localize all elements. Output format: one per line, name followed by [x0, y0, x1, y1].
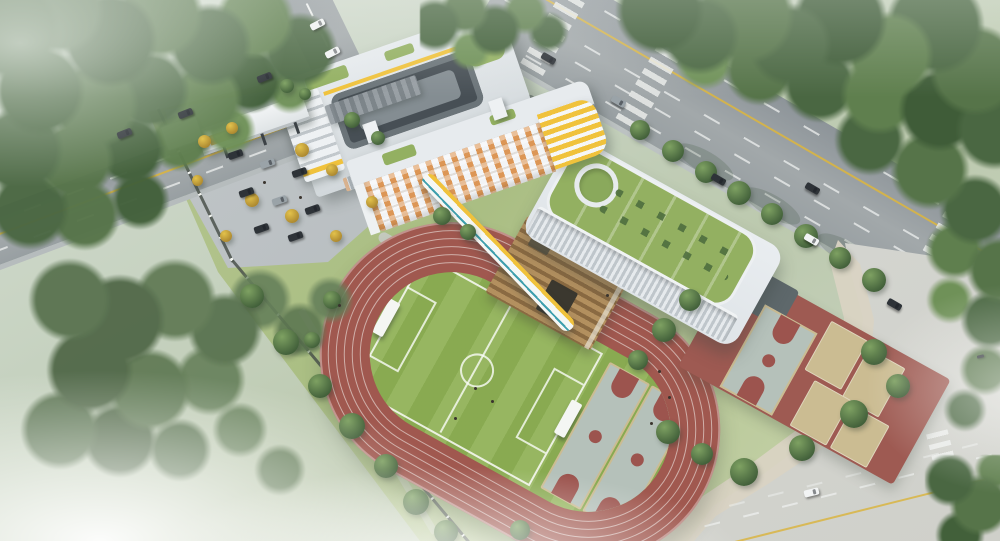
ginkgo-tree — [220, 230, 232, 242]
center-spot — [628, 450, 646, 468]
runner-dot — [606, 294, 609, 297]
center-spot — [586, 427, 604, 445]
forest-north-median — [420, 0, 570, 75]
tree — [656, 420, 680, 444]
ginkgo-tree — [330, 230, 342, 242]
person-dot — [454, 417, 457, 420]
tree — [840, 400, 868, 428]
forest-southwest — [0, 255, 460, 541]
tree — [861, 339, 887, 365]
tree — [730, 458, 758, 486]
tree — [630, 120, 650, 140]
tree — [371, 131, 385, 145]
roof-planting — [381, 144, 417, 166]
tree — [727, 181, 751, 205]
forest-northwest — [0, 0, 370, 260]
runner-dot — [658, 370, 661, 373]
person-dot — [491, 400, 494, 403]
runner-dot — [668, 396, 671, 399]
person-dot — [263, 181, 266, 184]
tree — [403, 489, 429, 515]
runner-dot — [650, 422, 653, 425]
tree — [344, 112, 360, 128]
ginkgo-tree — [326, 164, 338, 176]
ginkgo-tree — [366, 196, 378, 208]
tree — [829, 247, 851, 269]
tree — [460, 224, 476, 240]
runner-dot — [338, 304, 341, 307]
tree — [886, 374, 910, 398]
tree — [299, 88, 311, 100]
tree — [339, 413, 365, 439]
tree — [628, 350, 648, 370]
tree — [761, 203, 783, 225]
tree — [652, 318, 676, 342]
person-dot — [299, 196, 302, 199]
tree — [240, 284, 264, 308]
person-dot — [474, 387, 477, 390]
tree — [308, 374, 332, 398]
forest-northeast — [610, 0, 1000, 440]
ginkgo-tree — [192, 175, 203, 186]
ginkgo-tree — [295, 143, 309, 157]
court-key — [551, 470, 583, 503]
tree — [679, 289, 701, 311]
ginkgo-tree — [285, 209, 299, 223]
tree — [433, 207, 451, 225]
tree — [691, 443, 713, 465]
tree — [374, 454, 398, 478]
forest-southeast-corner — [925, 455, 1000, 541]
tree — [662, 140, 684, 162]
ginkgo-tree — [198, 135, 211, 148]
tree — [789, 435, 815, 461]
tree — [304, 332, 320, 348]
tree — [273, 329, 299, 355]
tree — [862, 268, 886, 292]
tree — [434, 520, 458, 541]
tree — [510, 520, 530, 540]
tree — [280, 79, 294, 93]
campus-aerial-render — [0, 0, 1000, 541]
ginkgo-tree — [226, 122, 238, 134]
